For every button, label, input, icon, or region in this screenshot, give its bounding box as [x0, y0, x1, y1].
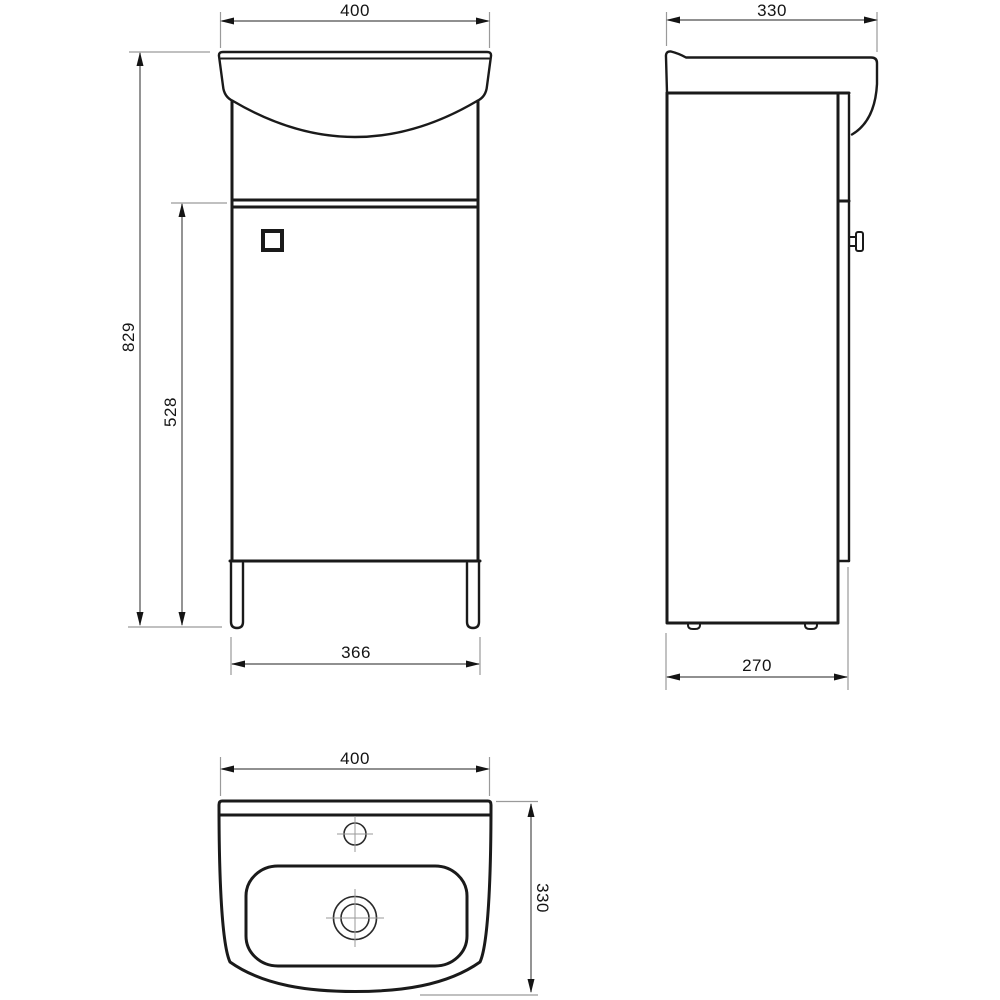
arrowhead-right	[834, 674, 848, 681]
door-knob-cap	[856, 232, 863, 251]
cabinet-side-body	[667, 93, 838, 623]
front-right-leg	[467, 563, 479, 628]
front-left-leg	[231, 563, 243, 628]
dimension-label-total-height: 829	[119, 322, 138, 352]
dimension-label-leg-span: 366	[341, 643, 371, 662]
arrowhead-up	[528, 803, 535, 817]
arrowhead-down	[137, 612, 144, 626]
dimension-label-base-depth: 270	[742, 656, 772, 675]
side-view-dimensions: 330 270	[666, 1, 878, 690]
dimension-label-side-depth: 330	[757, 1, 787, 20]
dimension-label-plan-depth: 330	[533, 883, 552, 913]
front-view-dimensions: 400 829 528 366	[119, 1, 490, 675]
arrowhead-left	[666, 674, 680, 681]
arrowhead-right	[466, 661, 480, 668]
drawing-canvas: 400 829 528 366	[0, 0, 1000, 1000]
dimension-label-front-width: 400	[340, 1, 370, 20]
arrowhead-left	[231, 661, 245, 668]
door-handle	[263, 231, 282, 250]
side-view	[666, 51, 877, 629]
basin-bowl-outline	[246, 866, 467, 966]
technical-drawing: 400 829 528 366	[0, 0, 1000, 1000]
arrowhead-down	[179, 612, 186, 626]
arrowhead-up	[137, 52, 144, 66]
arrowhead-down	[528, 979, 535, 993]
arrowhead-right	[476, 18, 490, 25]
arrowhead-left	[220, 766, 234, 773]
dimension-label-plan-width: 400	[340, 749, 370, 768]
arrowhead-up	[179, 203, 186, 217]
basin-front-outline	[219, 52, 491, 137]
arrowhead-left	[666, 17, 680, 24]
front-view	[219, 52, 491, 628]
arrowhead-right	[476, 766, 490, 773]
dimension-label-cabinet-height: 528	[161, 397, 180, 427]
plan-view-dimensions: 400 330	[220, 749, 552, 995]
arrowhead-right	[864, 17, 878, 24]
arrowhead-left	[220, 18, 234, 25]
plan-view	[219, 801, 491, 992]
